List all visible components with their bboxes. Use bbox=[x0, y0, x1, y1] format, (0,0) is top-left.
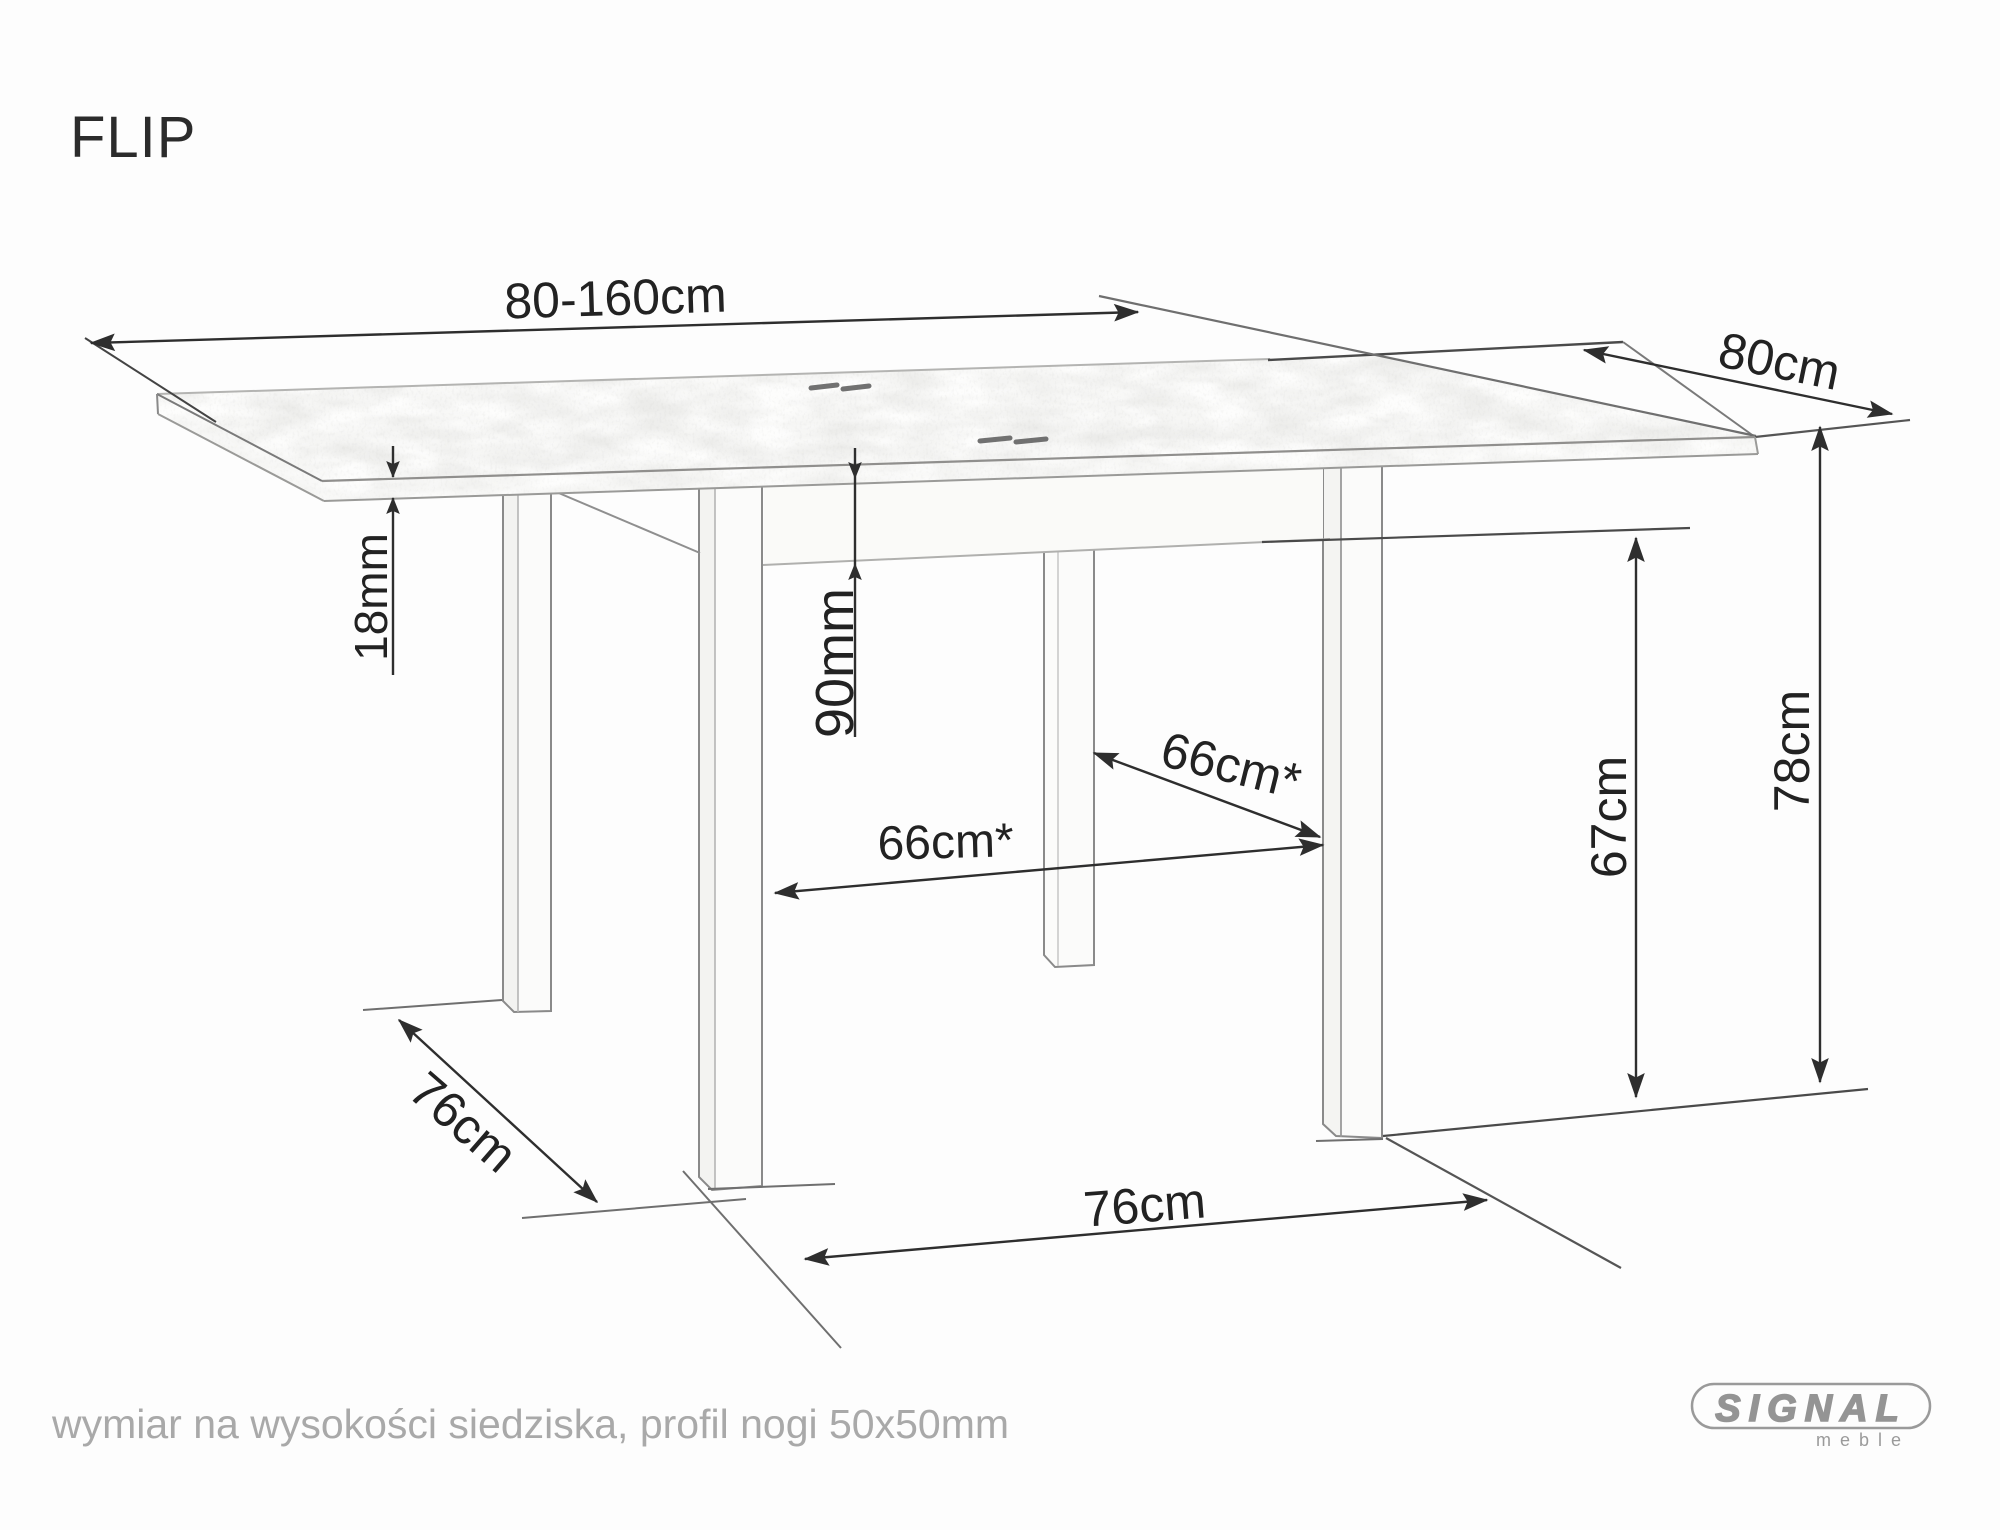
svg-text:meble: meble bbox=[1816, 1430, 1910, 1450]
svg-text:80-160cm: 80-160cm bbox=[503, 267, 727, 330]
svg-text:76cm: 76cm bbox=[1082, 1172, 1208, 1237]
svg-text:SIGNAL: SIGNAL bbox=[1715, 1388, 1907, 1430]
svg-text:90mm: 90mm bbox=[805, 588, 865, 738]
svg-text:wymiar na wysokości siedziska,: wymiar na wysokości siedziska, profil no… bbox=[51, 1401, 1009, 1447]
svg-text:67cm: 67cm bbox=[1581, 756, 1637, 878]
svg-text:FLIP: FLIP bbox=[70, 105, 197, 170]
svg-text:78cm: 78cm bbox=[1764, 690, 1820, 812]
svg-text:66cm*: 66cm* bbox=[877, 814, 1014, 871]
svg-text:18mm: 18mm bbox=[345, 533, 397, 661]
